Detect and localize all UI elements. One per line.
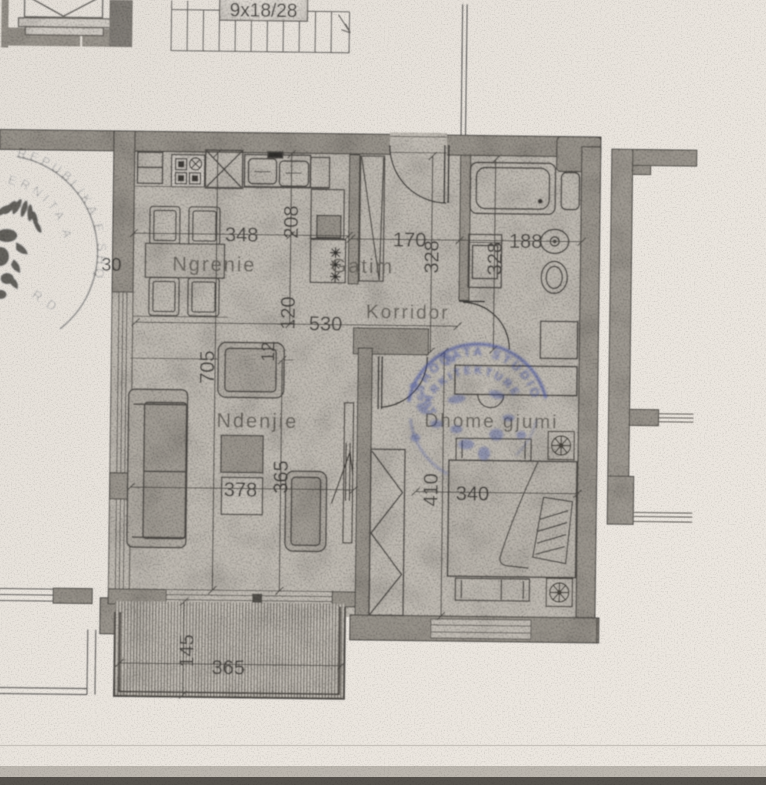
- svg-text:Ndenjie: Ndenjie: [216, 410, 298, 433]
- svg-text:340: 340: [456, 483, 490, 505]
- svg-text:Korridor: Korridor: [366, 302, 450, 324]
- svg-text:208: 208: [281, 205, 303, 239]
- svg-text:Ngrenie: Ngrenie: [172, 254, 256, 277]
- svg-text:145: 145: [176, 634, 198, 668]
- svg-text:188: 188: [509, 231, 543, 253]
- svg-text:120: 120: [278, 296, 300, 330]
- svg-text:530: 530: [309, 313, 343, 335]
- svg-text:328: 328: [484, 242, 506, 276]
- svg-text:365: 365: [271, 460, 293, 494]
- svg-text:348: 348: [225, 224, 259, 246]
- svg-text:Gatim: Gatim: [331, 256, 395, 279]
- svg-text:328: 328: [421, 240, 443, 274]
- svg-text:365: 365: [211, 657, 245, 679]
- svg-text:9x18/28: 9x18/28: [230, 0, 298, 22]
- svg-text:12: 12: [258, 342, 278, 362]
- svg-text:Dhome gjumi: Dhome gjumi: [424, 411, 558, 434]
- svg-text:410: 410: [420, 473, 442, 507]
- svg-text:378: 378: [224, 479, 258, 501]
- svg-text:705: 705: [197, 350, 219, 384]
